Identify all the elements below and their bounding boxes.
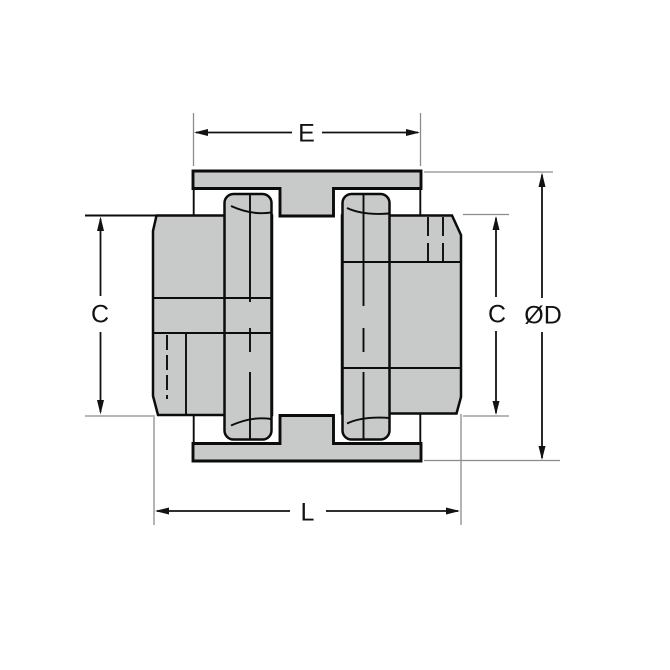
right-jaw — [343, 194, 390, 440]
c-left-arrow-down — [97, 400, 104, 415]
c-left-arrow-up — [97, 217, 104, 232]
c-right-arrow-down — [493, 401, 500, 415]
dimension-e: E — [194, 113, 421, 166]
technical-drawing-canvas: E C C ØD L — [0, 0, 670, 670]
left-jaw — [225, 194, 272, 440]
e-label: E — [298, 120, 315, 148]
od-arrow-down — [539, 446, 546, 460]
c-right-label: C — [488, 301, 506, 329]
l-arrow-right — [446, 508, 460, 515]
e-arrow-right — [406, 129, 420, 136]
od-label: ØD — [524, 302, 562, 330]
dimension-c-left: C — [85, 216, 156, 417]
c-right-arrow-up — [493, 216, 500, 230]
dimension-c-right: C — [463, 215, 509, 417]
l-arrow-left — [155, 508, 169, 515]
coupling-section-drawing: E C C ØD L — [0, 0, 670, 670]
c-left-label: C — [91, 301, 109, 329]
l-label: L — [301, 499, 315, 527]
od-arrow-up — [539, 173, 546, 188]
e-arrow-left — [194, 129, 208, 136]
